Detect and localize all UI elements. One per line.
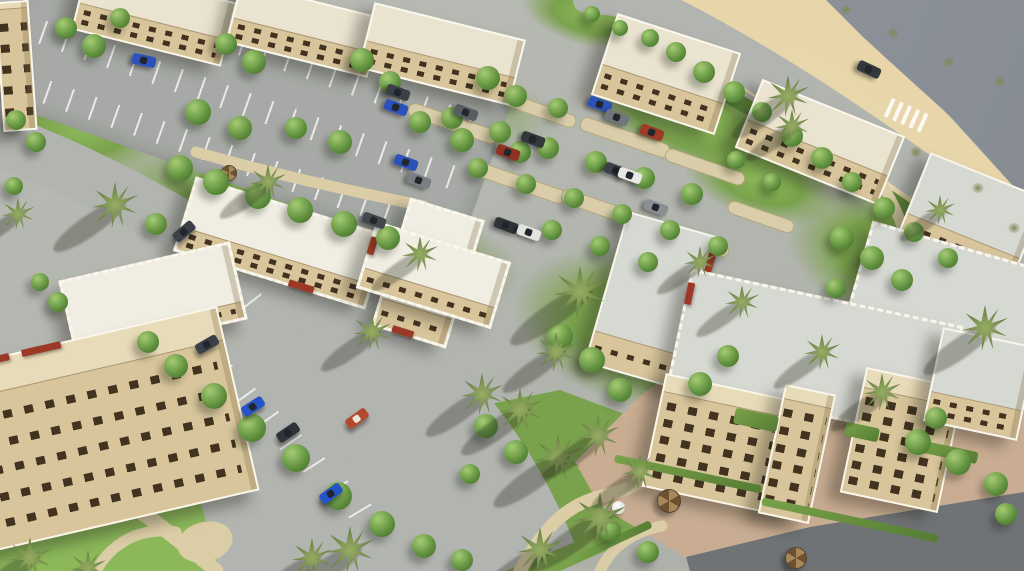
tree	[945, 449, 971, 475]
tree	[826, 278, 846, 298]
grass-tuft	[971, 183, 985, 193]
car-windshield	[351, 413, 362, 424]
window-row	[594, 345, 677, 373]
car-windshield	[401, 157, 411, 167]
tree	[666, 42, 686, 62]
tree	[282, 444, 310, 472]
tree	[412, 534, 436, 558]
tree	[215, 33, 237, 55]
car-windshield	[612, 112, 622, 122]
grass-tuft	[909, 147, 923, 157]
tree	[185, 99, 211, 125]
tree	[612, 204, 632, 224]
car-windshield	[651, 202, 661, 212]
car-windshield	[325, 488, 336, 499]
tree	[938, 248, 958, 268]
tree	[48, 292, 68, 312]
tree	[905, 429, 931, 455]
tree	[369, 511, 395, 537]
grass-tuft	[1007, 223, 1021, 233]
window-row	[779, 426, 824, 443]
tree	[167, 155, 193, 181]
window-row	[775, 443, 820, 460]
red-awning	[0, 353, 9, 372]
tree	[201, 383, 227, 409]
car-windshield	[528, 134, 538, 144]
tree	[350, 48, 374, 72]
residential-compound-aerial-render	[0, 0, 1024, 571]
tree	[242, 50, 266, 74]
car-windshield	[178, 226, 189, 237]
tree	[708, 236, 728, 256]
tree	[660, 220, 680, 240]
window-row	[768, 478, 813, 495]
tree	[409, 111, 431, 133]
car-windshield	[503, 147, 513, 157]
car-windshield	[461, 107, 471, 117]
tree	[376, 226, 400, 250]
car-windshield	[414, 175, 424, 185]
tree	[590, 236, 610, 256]
tree	[984, 472, 1008, 496]
car-windshield	[201, 339, 212, 350]
car-windshield	[863, 64, 873, 74]
car-windshield	[282, 427, 293, 438]
tree	[641, 29, 659, 47]
tree	[450, 128, 474, 152]
tree	[564, 188, 584, 208]
tree	[489, 121, 511, 143]
tree	[717, 345, 739, 367]
window-row	[782, 409, 827, 426]
grass-tuft	[993, 77, 1007, 87]
tree	[55, 17, 77, 39]
tree	[584, 6, 600, 22]
tree	[681, 183, 703, 205]
car-windshield	[391, 102, 401, 112]
tree	[542, 220, 562, 240]
grass-tuft	[942, 57, 956, 67]
tree	[451, 549, 473, 571]
tree	[612, 20, 628, 36]
grass-tuft	[886, 28, 900, 38]
car-windshield	[247, 401, 258, 412]
tree	[31, 273, 49, 291]
tree	[723, 81, 745, 103]
tree	[82, 34, 106, 58]
tree	[860, 246, 884, 270]
car-windshield	[647, 127, 657, 137]
tree	[516, 174, 536, 194]
tree	[579, 347, 605, 373]
tree	[688, 372, 712, 396]
tree	[727, 151, 745, 169]
tree	[693, 61, 715, 83]
gazebo-hut	[657, 489, 681, 513]
car-windshield	[595, 99, 605, 109]
tree	[110, 8, 130, 28]
tree	[238, 414, 266, 442]
tree	[548, 98, 568, 118]
tree	[26, 132, 46, 152]
tree	[203, 169, 229, 195]
tree	[331, 211, 357, 237]
window-row	[771, 460, 816, 477]
tree	[460, 464, 480, 484]
tree	[638, 252, 658, 272]
tree	[285, 117, 307, 139]
tree	[145, 213, 167, 235]
tree	[763, 173, 781, 191]
car-windshield	[393, 87, 403, 97]
tree	[925, 407, 947, 429]
tree	[995, 503, 1017, 525]
tree	[137, 331, 159, 353]
tree	[228, 116, 252, 140]
tree	[811, 147, 833, 169]
grass-tuft	[839, 5, 853, 15]
aerial-rendering-frame	[0, 0, 1024, 571]
tree	[328, 130, 352, 154]
car-windshield	[501, 220, 511, 230]
tree	[164, 354, 188, 378]
car-windshield	[524, 227, 534, 237]
car-windshield	[625, 170, 635, 180]
car-windshield	[139, 55, 148, 64]
tree	[287, 197, 313, 223]
tree	[5, 177, 23, 195]
tree	[830, 226, 854, 250]
tree	[608, 378, 632, 402]
car-windshield	[369, 215, 379, 225]
gazebo-hut	[785, 547, 807, 569]
tree	[504, 440, 528, 464]
tree	[476, 66, 500, 90]
tree	[6, 110, 26, 130]
tree	[637, 541, 659, 563]
tree	[505, 85, 527, 107]
tree	[842, 172, 862, 192]
tree	[891, 269, 913, 291]
tree	[873, 197, 895, 219]
tree	[468, 158, 488, 178]
